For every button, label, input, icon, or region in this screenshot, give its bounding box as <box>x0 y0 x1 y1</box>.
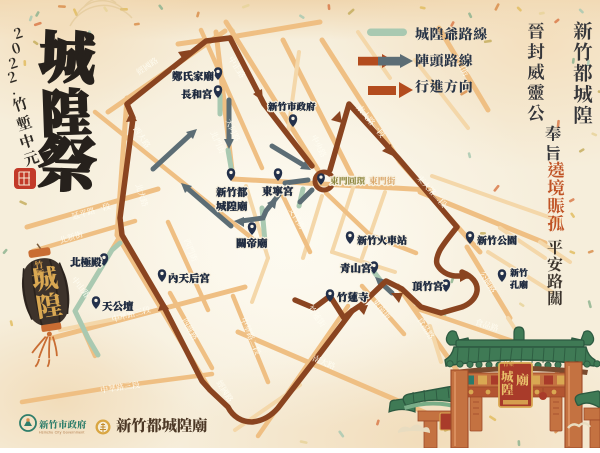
svg-text:Hsinchu City Government: Hsinchu City Government <box>39 431 85 435</box>
